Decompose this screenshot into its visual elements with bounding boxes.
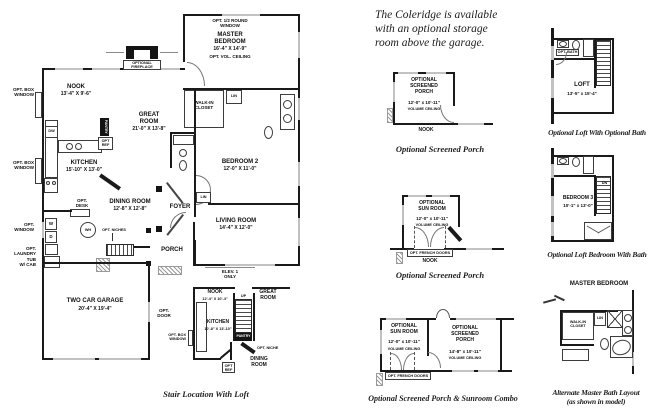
screened-porch-dims: 14'-8" x 10'-11": [434, 349, 496, 354]
door-swing-arc: [170, 212, 186, 228]
nook-label: NOOK: [198, 290, 232, 296]
window-marker: [432, 195, 450, 197]
stairs: [106, 244, 134, 256]
master-bedroom-header: MASTER BEDROOM: [564, 281, 634, 288]
dining-room-dims: 12'-8" X 12'-8": [103, 207, 157, 213]
dn-label: DN: [598, 181, 611, 185]
volume-ceiling-label: VOLUME CEILING: [398, 107, 450, 111]
shower: [607, 310, 623, 328]
box-window: [35, 92, 42, 118]
note-line: The Coleridge is available: [375, 8, 535, 22]
dishwasher-label: DW: [45, 129, 58, 133]
porch-post: [146, 228, 151, 233]
master-bath-caption-line1: Alternate Master Bath Layout: [540, 388, 650, 397]
linen-label: LIN: [226, 94, 242, 98]
door-swing-arc: [391, 353, 402, 370]
master-bedroom-label: MASTER BEDROOM: [200, 32, 260, 46]
linen-label: LIN: [594, 316, 606, 320]
window-marker: [551, 222, 554, 236]
door-swing-arc: [403, 353, 414, 370]
opt-door-label: OPT. DOOR: [152, 308, 176, 319]
master-vol-ceiling-label: OPT. VOL. CEILING: [200, 54, 260, 59]
box-window: [188, 330, 193, 346]
great-room-label: GREAT ROOM: [250, 290, 286, 302]
stairs: [596, 40, 611, 86]
sink-bowl: [179, 149, 187, 157]
opt-door-opening: [148, 302, 150, 322]
wall-segment: [612, 38, 614, 114]
window-marker: [298, 98, 300, 120]
window-marker: [92, 68, 120, 70]
bathtub: [583, 39, 594, 57]
door-swing-arc: [556, 52, 567, 65]
opt-box-window-label: OPT. BOX WINDOW: [168, 333, 186, 342]
wall-segment: [208, 203, 298, 205]
opt-niches-label: OPT. NICHES: [98, 228, 130, 232]
door-swing-arc: [436, 309, 450, 318]
door-jamb: [445, 226, 446, 248]
pantry-label: PANTRY: [235, 335, 252, 339]
window-marker: [398, 72, 418, 74]
wall-segment: [500, 318, 502, 372]
nook-label: NOOK: [416, 259, 444, 265]
window-marker: [478, 370, 498, 372]
door-swing-arc: [430, 227, 444, 247]
window-marker: [225, 264, 275, 266]
break-line: [554, 295, 565, 301]
walk-in-closet-label: WALK-IN CLOSET: [564, 320, 592, 329]
niche-wall: [240, 342, 255, 354]
screened-porch-dims: 12'-0" x 10'-11": [396, 100, 452, 105]
toilet: [600, 338, 609, 350]
wall-segment: [458, 195, 460, 227]
sink-bowl: [283, 114, 292, 123]
sink-bowl: [283, 100, 292, 109]
living-room-dims: 14'-4" X 12'-0": [202, 226, 270, 232]
wall-segment: [427, 318, 429, 356]
door-steps: [396, 252, 403, 264]
sink-bowl: [559, 41, 567, 47]
sink-bowl: [559, 158, 567, 164]
french-doors-label: OPT. FRENCH DOORS: [385, 374, 431, 378]
wall-segment: [554, 240, 614, 242]
nook-dims: 12'-4" X 10'-4": [196, 297, 234, 301]
opt-niche-label: OPT. NICHE: [257, 346, 283, 350]
bay-post: [156, 186, 162, 192]
wall-segment: [594, 40, 596, 88]
porch-label: PORCH: [152, 247, 192, 254]
angled-wall: [448, 226, 463, 242]
window-marker: [160, 68, 180, 70]
volume-ceiling-label: VOLUME CEILING: [436, 356, 494, 360]
door-swing-arc: [415, 227, 429, 247]
stairs: [96, 258, 110, 272]
elev-label: ELEV. 1 ONLY: [212, 269, 248, 280]
foyer-label: FOYER: [162, 204, 198, 211]
bathtub: [173, 135, 194, 145]
sink-bowl: [624, 314, 632, 322]
porch-plan-caption: Optional Screened Porch: [392, 144, 488, 154]
screen-door: [387, 108, 393, 123]
wall-segment: [170, 132, 196, 134]
screened-porch-label: OPTIONAL SCREENED PORCH: [397, 78, 451, 96]
sun-room-label: OPTIONAL SUN ROOM: [406, 201, 458, 213]
window-marker: [408, 195, 426, 197]
sun-room-dims: 12'-0" x 10'-11": [381, 339, 427, 344]
door-swing-arc: [196, 175, 211, 190]
great-room-dims: 21'-0" X 13'-8": [122, 127, 176, 133]
sink-bowl: [66, 143, 73, 150]
availability-note: The Coleridge is available with an optio…: [375, 8, 535, 50]
window-marker: [456, 318, 496, 320]
sun-room-dims: 12'-0" x 10'-11": [404, 216, 460, 221]
master-bedroom-dims: 16'-4" X 14'-9": [200, 47, 260, 53]
garage-label: TWO CAR GARAGE: [55, 298, 135, 305]
bedroom2-dims: 12'-0" X 11'-0": [210, 167, 270, 173]
box-window: [35, 158, 42, 184]
loft-plan-caption: Optional Loft With Optional Bath: [544, 128, 650, 137]
sunroom-plan-caption: Optional Screened Porch: [392, 270, 488, 280]
wall-segment: [193, 287, 195, 359]
optional-fireplace-label: OPTIONAL FIREPLACE: [123, 61, 161, 70]
opt-ref-label: OPT REF: [222, 364, 235, 373]
kitchen-dims: 15'-10" X 13'-0": [56, 168, 112, 174]
burner: [46, 181, 50, 185]
toilet: [572, 157, 580, 167]
bay-wall: [166, 182, 183, 203]
opt-laundry-label: OPT. LAUNDRY TUB W/ CAB: [0, 246, 36, 267]
angled-wall: [99, 173, 121, 190]
wall-segment: [134, 246, 150, 248]
stair-plan-caption: Stair Location With Loft: [150, 389, 262, 399]
window-marker: [393, 82, 395, 102]
loft-dims: 13'-5" x 15'-4": [558, 91, 606, 96]
opt-window-label: OPT. WINDOW: [2, 222, 34, 233]
wall-segment: [560, 344, 594, 346]
nook-label: NOOK: [412, 128, 440, 134]
hearth-line: [106, 52, 124, 53]
dining-room-label: DINING ROOM: [242, 357, 276, 369]
french-doors-label: OPT. FRENCH DOORS: [407, 251, 453, 255]
bathtub: [583, 156, 594, 174]
burner: [52, 181, 56, 185]
sun-room-label: OPTIONAL SUN ROOM: [383, 324, 425, 336]
vanity: [562, 349, 589, 361]
garage-dims: 20'-4" X 19'-4": [55, 307, 135, 313]
combo-plan-caption: Optional Screened Porch & Sunroom Combo: [368, 394, 518, 403]
wall-segment: [42, 262, 150, 264]
garage-door-marker: [99, 358, 141, 360]
porch-wall: [193, 222, 195, 266]
up-label: UP: [237, 294, 250, 298]
wall-segment: [170, 132, 172, 168]
sink-bowl: [75, 143, 82, 150]
wall-segment: [193, 358, 221, 360]
opt-desk: [70, 209, 90, 217]
opt-box-window-label: OPT. BOX WINDOW: [2, 160, 34, 171]
wall-segment: [554, 175, 596, 177]
sink-bowl: [624, 326, 632, 334]
door-swing-arc: [187, 62, 205, 86]
kitchen-label: KITCHEN: [202, 320, 234, 326]
hearth-line: [160, 52, 178, 53]
window-marker: [298, 218, 300, 246]
dryer-label: D: [45, 234, 57, 239]
wall-segment: [253, 293, 255, 341]
opt-ref-label: OPT REF: [98, 139, 113, 148]
linen-label: LIN: [196, 195, 211, 199]
wall-segment: [612, 155, 614, 242]
break-line: [543, 298, 556, 303]
opt-box-window-label: OPT. BOX WINDOW: [2, 87, 34, 98]
laundry-tub: [45, 244, 58, 255]
note-line: room above the garage.: [375, 36, 535, 50]
washer-label: W: [45, 221, 57, 226]
bedroom3-dims: 10'-1" x 13'-0": [554, 203, 602, 208]
floor-plan-page: { "note": { "line1": "The Coleridge is a…: [0, 0, 650, 408]
wall-segment: [453, 72, 455, 106]
door-jamb: [414, 352, 415, 370]
walk-in-closet-label: WALK-IN CLOSET: [186, 100, 222, 111]
water-heater-label: WH: [80, 228, 96, 232]
kitchen-dims: 10'-8" X 13'-10": [199, 327, 237, 331]
master-bath-caption-line2: (as shown in model): [540, 397, 650, 406]
stairs: [235, 299, 252, 333]
window-marker: [386, 318, 406, 320]
nook-dims: 13'-4" X 9'-6": [50, 92, 102, 98]
opt-half-round-window-label: OPT. 1/2 ROUND WINDOW: [200, 18, 260, 29]
bedroom3-plan-caption: Optional Loft Bedroom With Bath: [542, 250, 650, 259]
window-marker: [452, 370, 474, 372]
bay-post: [156, 226, 162, 232]
wall-segment: [194, 203, 196, 217]
bedroom3-label: BEDROOM 3: [556, 196, 600, 202]
window-marker: [551, 78, 554, 98]
window-marker: [458, 123, 484, 125]
volume-ceiling-label: VOLUME CEILING: [382, 347, 426, 351]
porch-steps: [158, 266, 182, 275]
wall-segment: [502, 318, 514, 320]
note-line: with an optional storage: [375, 22, 535, 36]
loft-label: LOFT: [560, 82, 604, 89]
opt-desk-label: OPT. DESK: [70, 198, 94, 209]
window-marker: [298, 162, 300, 186]
window-marker: [426, 72, 446, 74]
wall-segment: [230, 342, 232, 360]
great-room-label: GREAT ROOM: [125, 112, 173, 126]
toilet: [179, 160, 187, 171]
fireplace-opening: [134, 50, 150, 59]
screened-porch-label: OPTIONAL SCREENED PORCH: [434, 326, 496, 344]
window-marker: [42, 222, 44, 238]
wall-segment: [554, 112, 614, 114]
door-steps: [376, 373, 383, 386]
window-marker: [402, 205, 404, 225]
window-marker: [222, 14, 260, 16]
wall-segment: [183, 14, 185, 62]
wall-segment: [42, 262, 44, 360]
wall-segment: [551, 28, 554, 124]
window-marker: [55, 68, 83, 70]
niche-pointer: [112, 233, 113, 241]
window-marker: [466, 248, 492, 250]
toilet: [264, 126, 273, 139]
window-marker: [298, 32, 300, 58]
garage-door-marker: [53, 358, 95, 360]
wall-segment: [42, 210, 72, 212]
volume-ceiling-label: VOLUME CEILING: [406, 223, 458, 227]
elev-line: [205, 267, 255, 268]
